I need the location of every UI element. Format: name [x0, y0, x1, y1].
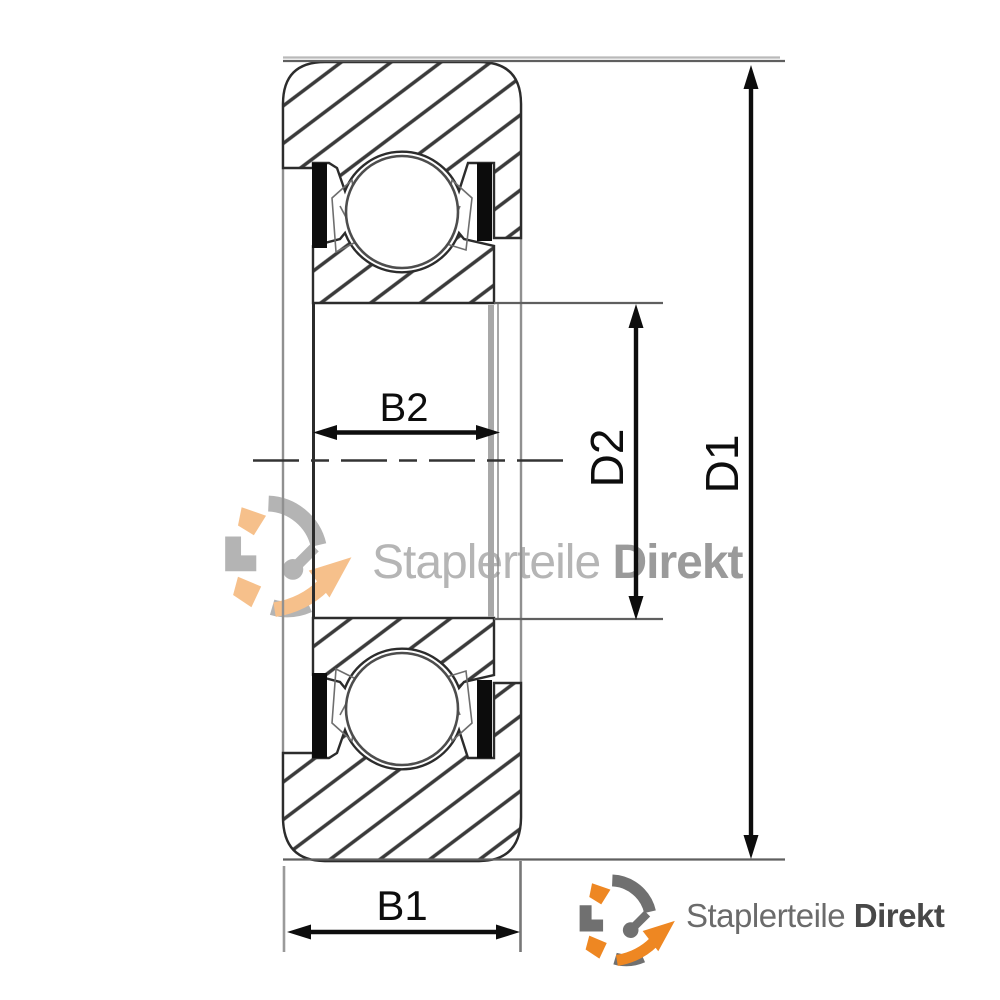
dim-label-b1: B1 [376, 882, 427, 929]
staplerteile-logo-icon [586, 880, 675, 960]
dimension-d1: D1 [696, 65, 759, 859]
dim-d2-arrowhead-bottom [629, 596, 644, 620]
footer-brand-regular: Staplerteile [686, 897, 845, 934]
watermark-wordmark: Staplerteile Direkt [372, 536, 744, 589]
product-drawing-canvas: Staplerteile Direkt [0, 0, 1000, 1000]
footer-wordmark: Staplerteile Direkt [686, 897, 945, 934]
dimension-b1: B1 [287, 882, 520, 940]
bearing-diagram: Staplerteile Direkt [0, 0, 1000, 1000]
seal-top-right [477, 163, 492, 241]
watermark-brand-bold: Direkt [612, 536, 743, 589]
watermark-brand-regular: Staplerteile [372, 536, 600, 589]
dim-d2-arrowhead-top [629, 304, 644, 328]
seal-bottom-left [312, 673, 327, 758]
dim-d1-arrowhead-top [744, 65, 759, 89]
ball-bottom [346, 653, 458, 765]
footer-brand-bold: Direkt [854, 897, 945, 934]
dim-b2-arrowhead-left [313, 425, 337, 440]
dim-b1-arrowhead-right [496, 925, 520, 940]
dim-d1-arrowhead-bottom [744, 835, 759, 859]
seal-top-left [312, 163, 327, 248]
dim-label-b2: B2 [380, 386, 429, 430]
ball-top [346, 156, 458, 268]
dim-label-d1: D1 [696, 435, 748, 494]
seal-bottom-right [477, 680, 492, 758]
footer-brand-logo: Staplerteile Direkt [586, 880, 945, 960]
dim-b1-arrowhead-left [287, 925, 311, 940]
staplerteile-watermark-logo-icon [233, 504, 351, 610]
dim-label-d2: D2 [581, 429, 633, 488]
dimension-b2: B2 [313, 386, 500, 440]
